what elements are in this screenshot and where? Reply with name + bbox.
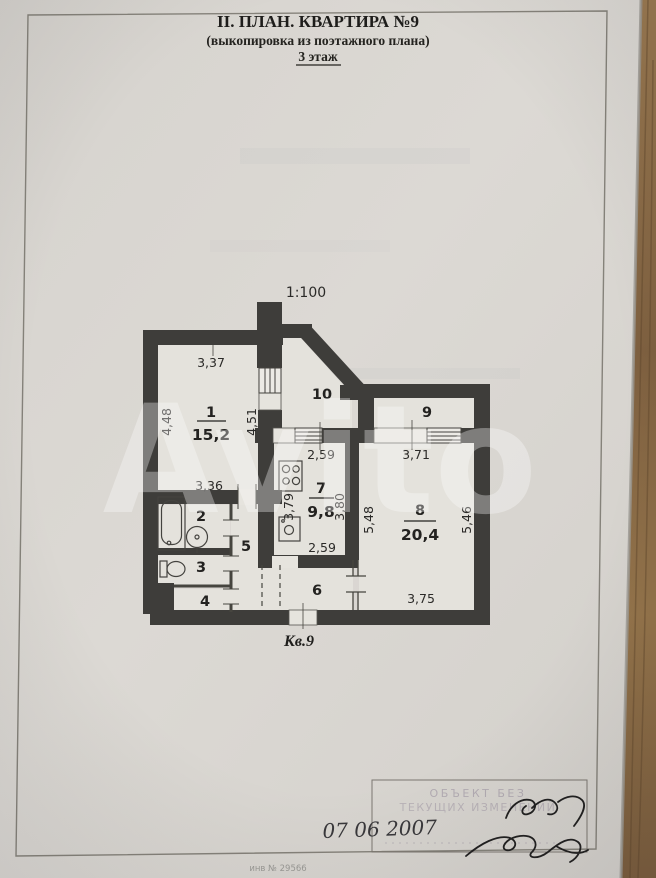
photo-vignette (0, 0, 656, 878)
scanned-floorplan-photo: II. ПЛАН. КВАРТИРА №9 (выкопировка из по… (0, 0, 656, 878)
floorplan-canvas: II. ПЛАН. КВАРТИРА №9 (выкопировка из по… (0, 0, 656, 878)
